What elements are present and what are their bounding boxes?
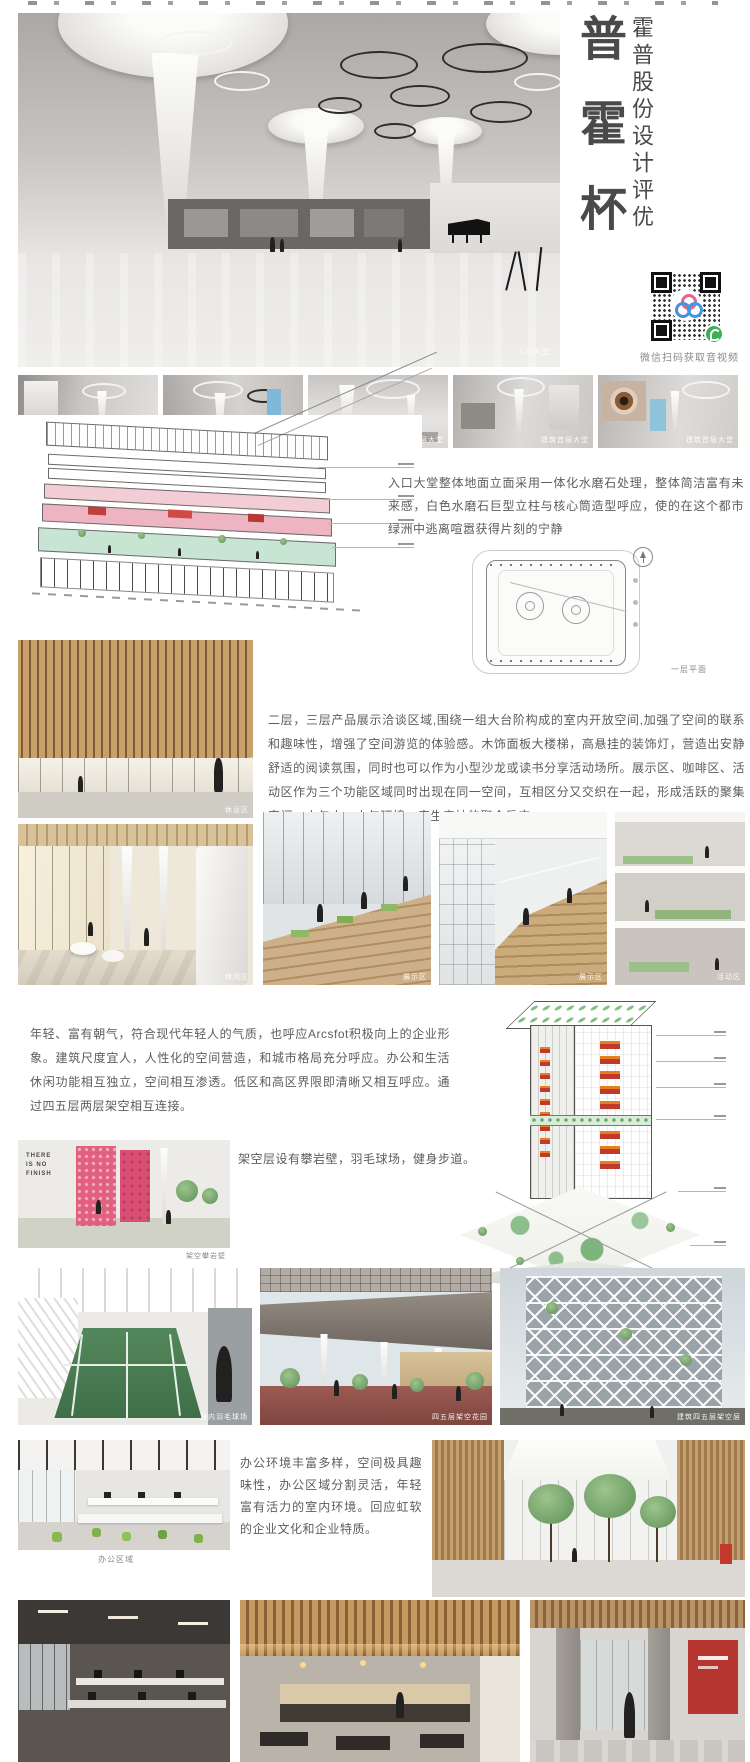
ring-light [442, 43, 528, 73]
render-atrium [432, 1440, 745, 1597]
person-figure [270, 237, 275, 252]
person-figure [398, 239, 402, 252]
wall-slogan: THERE IS NO FINISH [26, 1152, 60, 1179]
section-axonometric-drawing [18, 415, 422, 615]
ring-light [340, 51, 418, 79]
site-plan-drawing [470, 548, 642, 676]
red-signage [720, 1544, 732, 1564]
paragraph-corporate: 年轻、富有朝气，符合现代年轻人的气质，也呼应Arcsfot积极向上的企业形象。建… [30, 1022, 450, 1118]
tower-axonometric-drawing [450, 995, 745, 1310]
tower-red-strip [540, 1045, 550, 1157]
artwork [364, 209, 404, 237]
ring-light [390, 85, 450, 107]
north-arrow-icon [633, 547, 653, 567]
climbing-wall-panel [120, 1150, 150, 1222]
ring-light [514, 73, 560, 91]
cropped-text-strip [28, 1, 718, 5]
red-feature-wall [688, 1640, 738, 1714]
qr-logo [672, 291, 700, 319]
floor-reflection [18, 253, 560, 367]
person-silhouette [216, 1346, 232, 1402]
paragraph-display: 二层，三层产品展示洽谈区域,围绕一组大台阶构成的室内开放空间,加强了空间的联系和… [268, 708, 745, 828]
qr-caption: 微信扫码获取音视频 [640, 349, 744, 364]
render-office-dark [18, 1600, 230, 1762]
soffit [260, 1292, 492, 1350]
plan-caption: 一层平面 [671, 664, 707, 675]
render-badminton-court: 室内羽毛球场 [18, 1268, 252, 1425]
tower-left-face [530, 1025, 576, 1199]
person-silhouette [624, 1692, 635, 1738]
render-stilt-terrace: 四五层架空花园 [260, 1268, 492, 1425]
render-leisure-colonnade: 休闲区 [18, 824, 253, 985]
render-corridor [530, 1600, 745, 1762]
person-figure [280, 239, 284, 252]
hero-caption: 入口大堂 [518, 347, 550, 357]
qr-code [650, 271, 722, 342]
render-display-stairs-2: 展示区 [439, 812, 607, 985]
competition-title: 普霍杯 [572, 14, 624, 269]
render-display-stairs-1: 展示区 [263, 812, 431, 985]
render-entrance-lobby: 入口大堂 [18, 13, 560, 367]
qr-finder-bottomleft [651, 320, 672, 341]
competition-subtitle: 霍普股份设计评优 [628, 16, 654, 232]
qr-finder-topleft [651, 272, 672, 293]
side-wall [430, 183, 560, 253]
eye-artwork [602, 381, 646, 421]
render-open-office [18, 1440, 230, 1550]
qr-finder-topright [700, 272, 721, 293]
tower-red-core [600, 1037, 620, 1169]
note-stilt-floor: 架空层设有攀岩壁，羽毛球场，健身步道。 [238, 1148, 448, 1171]
render-wood-ceiling-rest-area: 休息区 [18, 640, 253, 818]
office-caption: 办公区域 [98, 1554, 134, 1565]
artwork [240, 209, 298, 237]
thumbnail-lobby-4: 建筑首层大堂 [453, 375, 593, 448]
ring-light [318, 97, 362, 114]
qr-badge-icon [704, 324, 724, 344]
mushroom-column [136, 53, 214, 223]
paragraph-office: 办公环境丰富多样，空间极具趣味性，办公区域分割灵活，年轻富有活力的室内环境。回应… [240, 1452, 422, 1540]
render-lattice-facade: 建筑四五层架空层 [500, 1268, 745, 1425]
ring-light [158, 31, 232, 55]
ring-light [470, 101, 532, 123]
render-cafeteria [240, 1600, 520, 1762]
thumbnail-lobby-5: 建筑首层大堂 [598, 375, 738, 448]
paragraph-lobby: 入口大堂整体地面立面采用一体化水磨石处理，整体简洁富有未来感，白色水磨石巨型立柱… [388, 472, 744, 541]
artwork [184, 209, 228, 237]
ring-light [214, 71, 270, 91]
climbing-wall-panel [76, 1146, 116, 1226]
artwork [310, 209, 354, 237]
ring-light [374, 123, 416, 139]
piano-legs [452, 235, 486, 243]
lattice-building [526, 1276, 722, 1408]
skygarden-band [530, 1115, 651, 1126]
climb-caption: 架空攀岩壁 [186, 1251, 226, 1261]
render-climbing-wall: THERE IS NO FINISH [18, 1140, 230, 1248]
presentation-board: 入口大堂 普霍杯 霍普股份设计评优 微信扫码获取音视频 建筑首层大堂 建筑首层大… [0, 0, 750, 1762]
render-activity-levels: 活动区 [615, 812, 745, 985]
